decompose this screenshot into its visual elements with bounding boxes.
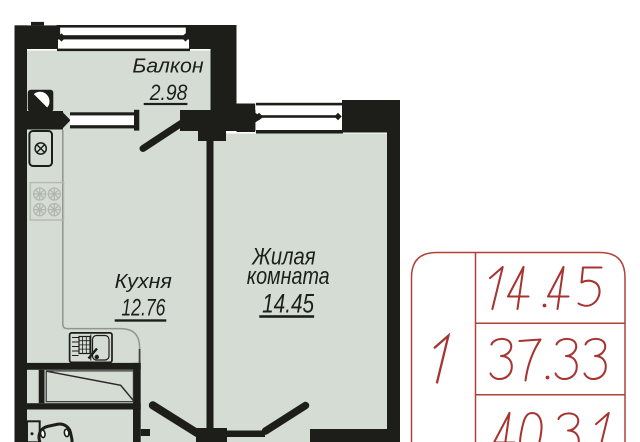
svg-text:комната: комната <box>247 263 330 290</box>
svg-text:Кухня: Кухня <box>115 271 172 293</box>
svg-text:14.45: 14.45 <box>262 288 314 318</box>
svg-text:Балкон: Балкон <box>132 55 203 77</box>
svg-text:2.98: 2.98 <box>149 80 188 105</box>
svg-text:12.76: 12.76 <box>121 294 165 321</box>
